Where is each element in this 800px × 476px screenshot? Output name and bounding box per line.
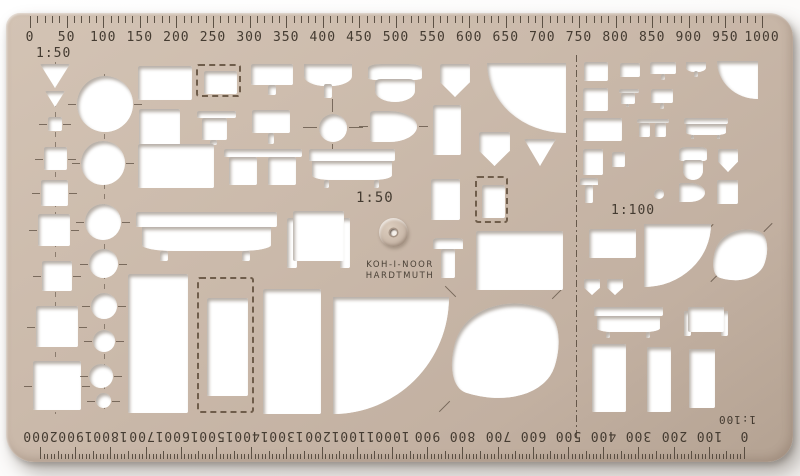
ruler-tick xyxy=(81,16,82,23)
s100-cabinet-cutout-part xyxy=(583,149,603,175)
ruler-tick xyxy=(44,454,45,459)
table-rect-cutout-part xyxy=(139,109,180,145)
triangle-cutout-mid-part xyxy=(524,139,556,166)
ruler-tick xyxy=(656,451,657,459)
ruler-tick xyxy=(279,454,280,459)
ruler-tick xyxy=(674,447,675,459)
ruler-tick xyxy=(621,451,622,459)
crosshair-top xyxy=(332,99,333,112)
square-cutout-7 xyxy=(33,361,81,410)
ruler-tick xyxy=(526,454,527,459)
ruler-tick xyxy=(438,454,439,459)
ruler-label: 550 xyxy=(419,30,445,45)
ruler-tick xyxy=(725,16,726,28)
ruler-tick xyxy=(420,454,421,459)
ruler-tick xyxy=(396,454,397,459)
armchair-cutout-part xyxy=(293,211,343,261)
bathtub-cutout-part xyxy=(324,180,329,188)
s100-pent-cutout-1 xyxy=(584,279,600,295)
ruler-tick xyxy=(142,454,143,459)
ruler-tick xyxy=(660,16,661,23)
ruler-tick xyxy=(156,454,157,459)
circle-cutout-4-tick-right xyxy=(119,264,127,265)
wardrobe-cutout-2-part xyxy=(263,289,321,414)
circle-cutout-5 xyxy=(91,293,117,319)
shower-cutout-part xyxy=(479,132,510,166)
s100-armchair-cutout xyxy=(684,307,728,338)
ruler-tick xyxy=(417,454,418,459)
ruler-tick xyxy=(389,16,390,23)
ruler-tick xyxy=(663,454,664,459)
ruler-tick xyxy=(702,454,703,459)
ruler-label: 100 xyxy=(90,30,116,45)
ruler-label: 400 xyxy=(590,428,616,443)
ruler-tick xyxy=(191,454,192,459)
bidet-tick-left xyxy=(359,126,368,127)
square-cutout-4-tick-right xyxy=(71,230,79,231)
ruler-tick xyxy=(719,454,720,459)
circle-cutout-3-tick-left xyxy=(76,222,84,223)
circle-cutout-4-tick-left xyxy=(80,264,88,265)
ruler-tick xyxy=(336,454,337,459)
ruler-tick xyxy=(484,454,485,459)
washbasin-cutout-part xyxy=(251,64,293,85)
ruler-tick xyxy=(74,16,75,23)
square-cutout-7-part xyxy=(33,361,81,410)
ruler-tick xyxy=(406,454,407,459)
ruler-tick xyxy=(381,16,382,23)
quarter-piano-cutout-part xyxy=(333,297,449,414)
ruler-tick xyxy=(206,16,207,23)
s100-rect-cutout-2 xyxy=(583,88,608,111)
ruler-tick xyxy=(188,454,189,459)
circle-cutout-6-tick-right xyxy=(116,341,124,342)
ruler-label: 0 xyxy=(26,30,35,45)
ruler-label: 600 xyxy=(520,428,546,443)
ruler-tick xyxy=(371,454,372,459)
square-cutout-6-tick-left xyxy=(27,327,35,328)
square-cutout-5-tick-left xyxy=(33,276,41,277)
ruler-tick xyxy=(586,451,587,459)
ruler-tick xyxy=(455,454,456,459)
ruler-tick xyxy=(505,454,506,459)
s100-table-cutout xyxy=(619,89,639,107)
ruler-tick xyxy=(61,454,62,459)
ruler-tick xyxy=(494,454,495,459)
washbasin-cutout-2-part xyxy=(252,110,290,133)
s100-washbasin-cutout-2 xyxy=(651,89,673,109)
ruler-tick xyxy=(308,454,309,459)
ruler-tick xyxy=(508,454,509,459)
ruler-tick xyxy=(425,16,426,23)
cabinet-cutout-part xyxy=(433,105,461,155)
bed-cutout-2 xyxy=(476,231,563,290)
ruler-tick xyxy=(744,447,745,459)
ruler-tick xyxy=(638,447,639,459)
ruler-tick xyxy=(677,454,678,459)
ruler-tick xyxy=(418,16,419,23)
wardrobe-cutout-1-part xyxy=(128,274,188,413)
ruler-tick xyxy=(660,454,661,459)
ruler-tick xyxy=(469,454,470,459)
square-cutout-1 xyxy=(48,117,62,131)
ruler-tick xyxy=(762,16,763,28)
ruler-tick xyxy=(248,454,249,459)
square-cutout-5 xyxy=(42,261,72,291)
ruler-tick xyxy=(79,454,80,459)
ruler-tick xyxy=(487,454,488,459)
ruler-tick xyxy=(202,454,203,459)
ruler-tick xyxy=(543,454,544,459)
ruler-tick xyxy=(374,451,375,459)
ruler-tick xyxy=(110,447,111,459)
triangle-cutout-small-part xyxy=(45,91,65,107)
cabinet-cutout-2 xyxy=(431,179,460,220)
ruler-tick xyxy=(447,16,448,23)
ruler-tick xyxy=(561,454,562,459)
ruler-tick xyxy=(696,16,697,23)
s100-chair-cutout-part xyxy=(585,185,594,203)
ruler-tick xyxy=(100,454,101,459)
ruler-tick xyxy=(513,16,514,23)
ruler-tick xyxy=(649,454,650,459)
circle-cutout-3 xyxy=(85,204,121,240)
ruler-label: 350 xyxy=(273,30,299,45)
ruler-tick xyxy=(241,454,242,459)
ruler-tick xyxy=(698,454,699,459)
ruler-tick xyxy=(596,454,597,459)
ruler-tick xyxy=(512,454,513,459)
ruler-tick xyxy=(359,16,360,28)
ruler-tick xyxy=(535,16,536,23)
square-cutout-3-part xyxy=(41,180,68,206)
ruler-tick xyxy=(89,16,90,23)
ruler-tick xyxy=(330,16,331,23)
s100-circle-cutout-part xyxy=(654,189,664,199)
circle-cutout-8-tick-left xyxy=(87,401,95,402)
bed-cutout-2-part xyxy=(476,231,563,290)
ruler-tick xyxy=(586,16,587,23)
ruler-tick xyxy=(533,447,534,459)
s100-washbasin-cutout xyxy=(650,62,676,80)
ruler-tick xyxy=(191,16,192,23)
ruler-tick xyxy=(498,16,499,23)
ruler-tick xyxy=(667,454,668,459)
s100-toilet-cutout-part xyxy=(683,160,704,180)
ruler-tick xyxy=(381,454,382,459)
ruler-tick xyxy=(147,16,148,23)
square-cutout-4 xyxy=(38,214,70,246)
ruler-tick xyxy=(600,454,601,459)
ruler-tick xyxy=(176,16,177,28)
square-cutout-2-tick-right xyxy=(68,159,76,160)
triangle-cutout-large xyxy=(40,64,70,88)
ruler-tick xyxy=(167,454,168,459)
ruler-label: 400 xyxy=(310,30,336,45)
quarter-circle-cutout-large xyxy=(487,63,566,133)
ruler-label: 700 xyxy=(529,30,555,45)
ruler-tick xyxy=(554,454,555,459)
ruler-tick xyxy=(433,16,434,28)
ruler-label: 800 xyxy=(449,428,475,443)
ruler-tick xyxy=(709,447,710,459)
ruler-label: 1000 xyxy=(744,30,779,45)
ruler-tick xyxy=(689,16,690,28)
ruler-tick xyxy=(297,454,298,459)
ruler-tick xyxy=(730,454,731,459)
ruler-tick xyxy=(466,454,467,459)
s100-pent-cutout-1-part xyxy=(584,279,600,295)
ruler-tick xyxy=(242,16,243,23)
ruler-tick xyxy=(681,454,682,459)
ruler-tick xyxy=(705,454,706,459)
ruler-label: 200 xyxy=(163,30,189,45)
s100-rect-cutout-2-part xyxy=(583,88,608,111)
s100-wardrobe-cutout-3-part xyxy=(689,349,715,408)
brand-text: KOH-I-NOOR HARDTMUTH xyxy=(352,260,448,282)
bathtub-cutout-large xyxy=(136,212,277,261)
ruler-tick xyxy=(37,16,38,23)
s100-toilet-cutout-part xyxy=(679,147,707,161)
s100-round-washbasin-cutout-part xyxy=(694,71,697,77)
ruler-tick xyxy=(484,16,485,23)
s100-bathtub-cutout-2-part xyxy=(594,307,663,316)
s100-round-washbasin-cutout xyxy=(686,62,706,77)
ruler-tick xyxy=(388,454,389,459)
double-bed-cutout xyxy=(138,144,214,188)
ruler-tick xyxy=(572,454,573,459)
ruler-tick xyxy=(111,16,112,23)
double-table-cutout-part xyxy=(224,149,302,157)
square-cutout-1-tick-right xyxy=(63,124,71,125)
ruler-tick xyxy=(89,454,90,459)
s100-bathtub-cutout-part xyxy=(717,135,720,139)
bidet-cutout xyxy=(370,111,417,142)
s100-quarter-piano-cutout xyxy=(644,224,711,287)
s100-grand-piano-cutout xyxy=(715,227,766,283)
ruler-label: 1600 xyxy=(163,428,198,443)
triangle-cutout-mid xyxy=(524,139,556,166)
ruler-tick xyxy=(360,454,361,459)
ruler-label: 1500 xyxy=(198,428,233,443)
toilet-cutout-part xyxy=(368,64,422,80)
ruler-tick xyxy=(139,454,140,459)
circle-cutout-2-tick-right xyxy=(126,163,134,164)
ruler-tick xyxy=(431,454,432,459)
round-washbasin-cutout-part xyxy=(304,64,352,86)
ruler-tick xyxy=(607,454,608,459)
ruler-label: 850 xyxy=(639,30,665,45)
dashed-rect-cutout xyxy=(196,64,241,97)
s100-washbasin-cutout-2-part xyxy=(651,89,673,103)
ruler-tick xyxy=(286,16,287,28)
ruler-tick xyxy=(160,454,161,459)
ruler-tick xyxy=(128,451,129,459)
round-washbasin-cutout-part xyxy=(324,84,332,98)
ruler-label: 1200 xyxy=(304,428,339,443)
table-rect-cutout xyxy=(139,109,180,145)
s100-bathtub-cutout-part xyxy=(691,135,694,139)
ruler-tick xyxy=(624,454,625,459)
ruler-tick xyxy=(65,454,66,459)
ruler-tick xyxy=(153,454,154,459)
ruler-tick xyxy=(542,16,543,28)
ruler-tick xyxy=(638,16,639,23)
quarter-circle-cutout-large-part xyxy=(487,63,566,133)
circle-cutout-7-part xyxy=(89,364,113,388)
ruler-label: 250 xyxy=(200,30,226,45)
ruler-tick xyxy=(480,451,481,459)
ruler-tick xyxy=(440,16,441,23)
ruler-tick xyxy=(374,16,375,23)
piano-tick-1 xyxy=(445,286,456,297)
square-cutout-3 xyxy=(41,180,68,206)
circle-cutout-3-part xyxy=(85,204,121,240)
ruler-tick xyxy=(712,454,713,459)
ruler-tick xyxy=(262,454,263,459)
ruler-tick xyxy=(610,454,611,459)
ruler-tick xyxy=(579,16,580,28)
ruler-tick xyxy=(424,454,425,459)
ruler-tick xyxy=(718,16,719,23)
ruler-tick xyxy=(223,454,224,459)
ruler-label: 1300 xyxy=(269,428,304,443)
ruler-tick xyxy=(149,454,150,459)
ruler-label: 900 xyxy=(414,428,440,443)
square-cutout-1-tick-left xyxy=(39,124,47,125)
ruler-tick xyxy=(614,454,615,459)
ruler-tick xyxy=(315,16,316,23)
ruler-tick xyxy=(357,447,358,459)
ruler-tick xyxy=(540,454,541,459)
s100-bathtub-cutout-2-part xyxy=(606,332,610,338)
ruler-tick xyxy=(276,454,277,459)
ruler-label: 750 xyxy=(566,30,592,45)
ruler-tick xyxy=(195,454,196,459)
ruler-tick xyxy=(293,454,294,459)
ruler-label: 150 xyxy=(127,30,153,45)
ruler-tick xyxy=(378,454,379,459)
ruler-tick xyxy=(703,16,704,23)
ruler-tick xyxy=(364,454,365,459)
ruler-tick xyxy=(564,454,565,459)
ruler-tick xyxy=(740,454,741,459)
bathtub-cutout-large-part xyxy=(160,251,168,261)
ruler-tick xyxy=(635,454,636,459)
ruler-tick xyxy=(506,16,507,28)
ruler-tick xyxy=(132,454,133,459)
ruler-label: 900 xyxy=(676,30,702,45)
ruler-tick xyxy=(477,16,478,23)
square-cutout-4-tick-left xyxy=(29,230,37,231)
ruler-tick xyxy=(411,16,412,23)
ruler-tick xyxy=(86,454,87,459)
ruler-tick xyxy=(294,16,295,23)
double-table-cutout-part xyxy=(268,157,296,184)
ruler-tick xyxy=(413,454,414,459)
s100-double-bed-cutout-part xyxy=(583,118,622,141)
bathtub-cutout-part xyxy=(312,161,391,181)
ruler-tick xyxy=(82,454,83,459)
bed-cutout xyxy=(138,66,192,100)
circle-cutout-1-tick-right xyxy=(134,104,142,105)
ruler-tick xyxy=(68,454,69,459)
ruler-tick xyxy=(557,454,558,459)
ruler-tick xyxy=(367,454,368,459)
ruler-tick xyxy=(114,454,115,459)
square-cutout-3-tick-right xyxy=(69,193,77,194)
s100-urinal-cutout-part xyxy=(718,149,738,172)
ruler-tick xyxy=(396,16,397,28)
s100-bathtub-cutout-part xyxy=(686,124,726,135)
ruler-label: 100 xyxy=(696,428,722,443)
ruler-tick xyxy=(257,16,258,23)
s100-wardrobe-cutout-3 xyxy=(689,349,715,408)
ruler-label: 300 xyxy=(625,428,651,443)
square-cutout-5-tick-right xyxy=(73,276,81,277)
square-cutout-6-tick-right xyxy=(79,327,87,328)
ruler-tick xyxy=(177,454,178,459)
ruler-tick xyxy=(469,16,470,28)
ruler-tick xyxy=(118,16,119,23)
ruler-label: 1700 xyxy=(128,428,163,443)
s100-wardrobe-cutout-1 xyxy=(592,344,626,412)
s100-wardrobe-cutout-2 xyxy=(647,347,671,412)
ruler-tick xyxy=(205,454,206,459)
ruler-tick xyxy=(323,16,324,28)
ruler-label: 1900 xyxy=(58,428,93,443)
ruler-tick xyxy=(522,454,523,459)
s100-rect-cutout-3-part xyxy=(717,180,738,204)
ruler-tick xyxy=(498,447,499,459)
s100-double-table-cutout-part xyxy=(639,123,651,137)
circle-cutout-2-tick-left xyxy=(72,163,80,164)
s100-bathtub-cutout-2-part xyxy=(597,316,660,332)
ruler-tick xyxy=(283,454,284,459)
s100-washbasin-cutout-part xyxy=(661,74,666,80)
ruler-tick xyxy=(140,16,141,28)
ruler-tick xyxy=(459,454,460,459)
s100-urinal-cutout xyxy=(718,149,738,172)
bidet-tick-right xyxy=(419,126,428,127)
ruler-tick xyxy=(410,451,411,459)
s100-double-bed-cutout xyxy=(583,118,622,141)
grand-piano-cutout-part xyxy=(441,286,570,416)
ruler-tick xyxy=(318,454,319,459)
ruler-label: 1400 xyxy=(234,428,269,443)
circle-cutout-5-tick-right xyxy=(118,306,126,307)
wardrobe-cutout-2 xyxy=(263,289,321,414)
bathtub-cutout xyxy=(309,149,395,188)
ruler-tick xyxy=(385,454,386,459)
bathtub-cutout-large-part xyxy=(136,212,277,227)
ruler-tick xyxy=(434,454,435,459)
circle-cutout-7 xyxy=(89,364,113,388)
double-bed-cutout-part xyxy=(138,144,214,188)
ruler-tick xyxy=(733,454,734,459)
grand-piano-cutout xyxy=(455,299,557,403)
toilet-cutout-part xyxy=(375,79,415,102)
ruler-tick xyxy=(75,447,76,459)
ruler-tick xyxy=(181,447,182,459)
s100-quarter-circle-cutout xyxy=(717,61,758,99)
ruler-tick xyxy=(198,16,199,23)
ruler-tick xyxy=(125,16,126,23)
armchair-cutout xyxy=(287,211,350,272)
ruler-tick xyxy=(716,454,717,459)
ruler-tick xyxy=(135,454,136,459)
ruler-tick xyxy=(536,454,537,459)
